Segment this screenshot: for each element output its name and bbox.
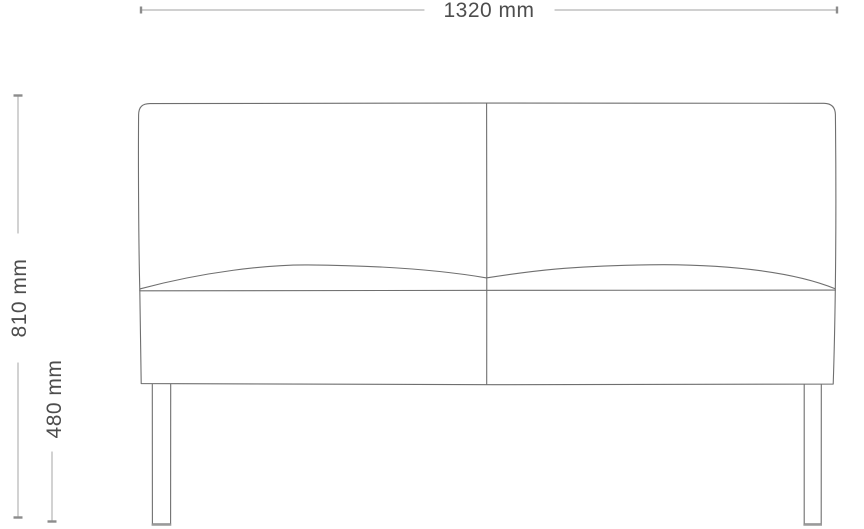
- sofa-outline-group: [138, 103, 835, 524]
- seat-height-dimension-label: 480 mm: [43, 351, 67, 447]
- dimension-ticks-group: [14, 7, 838, 522]
- furniture-dimension-diagram: 1320 mm 810 mm 480 mm: [0, 0, 864, 529]
- sofa-line-drawing: [0, 0, 864, 529]
- seat-cushion-curve-right: [487, 265, 835, 289]
- sofa-left-leg: [152, 384, 170, 524]
- sofa-seat-top-line: [140, 290, 836, 291]
- width-dimension-label: 1320 mm: [429, 0, 549, 22]
- sofa-seat-band-outline: [140, 290, 836, 385]
- sofa-right-leg: [804, 385, 821, 524]
- overall-height-dimension-label: 810 mm: [8, 250, 32, 346]
- seat-cushion-curve-left: [140, 265, 486, 289]
